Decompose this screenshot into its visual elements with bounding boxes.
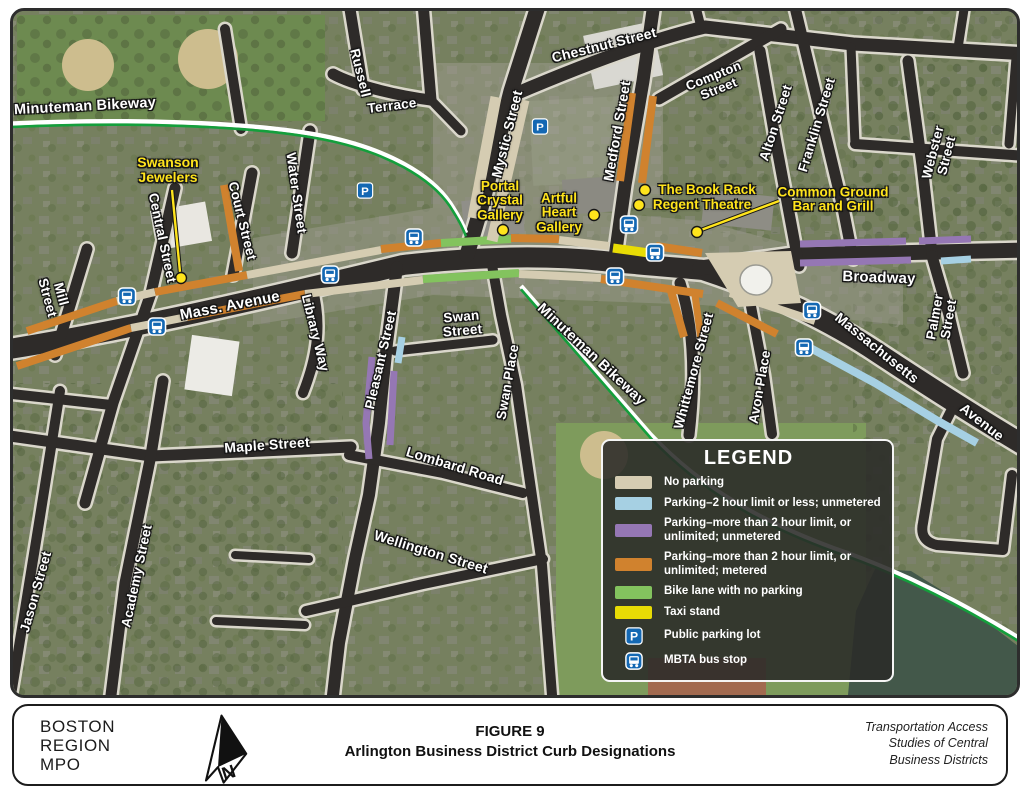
legend-label: Parking–more than 2 hour limit, or unlim… [664,517,882,544]
legend-swatch-blue [615,497,652,510]
legend-swatch-purple [615,524,652,537]
legend-swatch-yellow [615,606,652,619]
poi-dot [634,200,645,211]
legend: LEGEND No parkingParking–2 hour limit or… [601,439,894,682]
poi-dot [692,227,703,238]
legend-label: Parking–2 hour limit or less; unmetered [664,497,881,511]
street [851,47,855,144]
curb-yellow [613,248,649,253]
curb-purple [800,241,906,244]
legend-row: No parking [615,476,882,490]
legend-bus-icon [615,652,652,670]
legend-items: No parkingParking–2 hour limit or less; … [615,476,882,670]
figure-caption: FIGURE 9 Arlington Business District Cur… [14,723,1006,760]
legend-swatch-orange [615,558,652,571]
legend-row: Parking–more than 2 hour limit, or unlim… [615,551,882,578]
figure-title: Arlington Business District Curb Designa… [14,743,1006,760]
legend-label: Taxi stand [664,606,720,620]
curb-purple [800,260,911,263]
curb-beige [519,274,601,278]
figure-number: FIGURE 9 [14,723,1006,740]
footer-bar: BOSTON REGION MPO N FIGURE 9 Arlington B… [12,704,1008,786]
legend-row: Bike lane with no parking [615,585,882,599]
map-figure: P P Minuteman BikewayRussellTerraceChest… [10,8,1020,698]
curb-orange [511,238,559,239]
source-note: Transportation Access Studies of Central… [865,719,988,768]
legend-row: Parking–2 hour limit or less; unmetered [615,497,882,511]
curb-blue [398,337,402,363]
legend-parking-icon: P [615,627,652,645]
curb-purple [919,239,971,241]
street [216,621,305,625]
poi-dot [589,210,600,221]
legend-label: Parking–more than 2 hour limit, or unlim… [664,551,882,578]
legend-label: Bike lane with no parking [664,585,803,599]
legend-label: No parking [664,476,724,490]
svg-text:P: P [629,629,637,643]
curb-green [441,239,511,243]
legend-row: PPublic parking lot [615,627,882,645]
figure-page: P P Minuteman BikewayRussellTerraceChest… [0,0,1024,800]
legend-swatch-beige [615,476,652,489]
curb-blue [941,259,971,261]
legend-row: Parking–more than 2 hour limit, or unlim… [615,517,882,544]
poi-dot [498,225,509,236]
legend-swatch-green [615,586,652,599]
poi-dot [640,185,651,196]
curb-purple [390,371,394,445]
poi-dot [176,273,187,284]
street [695,11,701,27]
legend-label: MBTA bus stop [664,654,747,668]
legend-row: Taxi stand [615,606,882,620]
legend-row: MBTA bus stop [615,652,882,670]
street [235,555,309,559]
water-tank-building [740,265,772,295]
legend-label: Public parking lot [664,629,760,643]
legend-title: LEGEND [615,447,882,470]
